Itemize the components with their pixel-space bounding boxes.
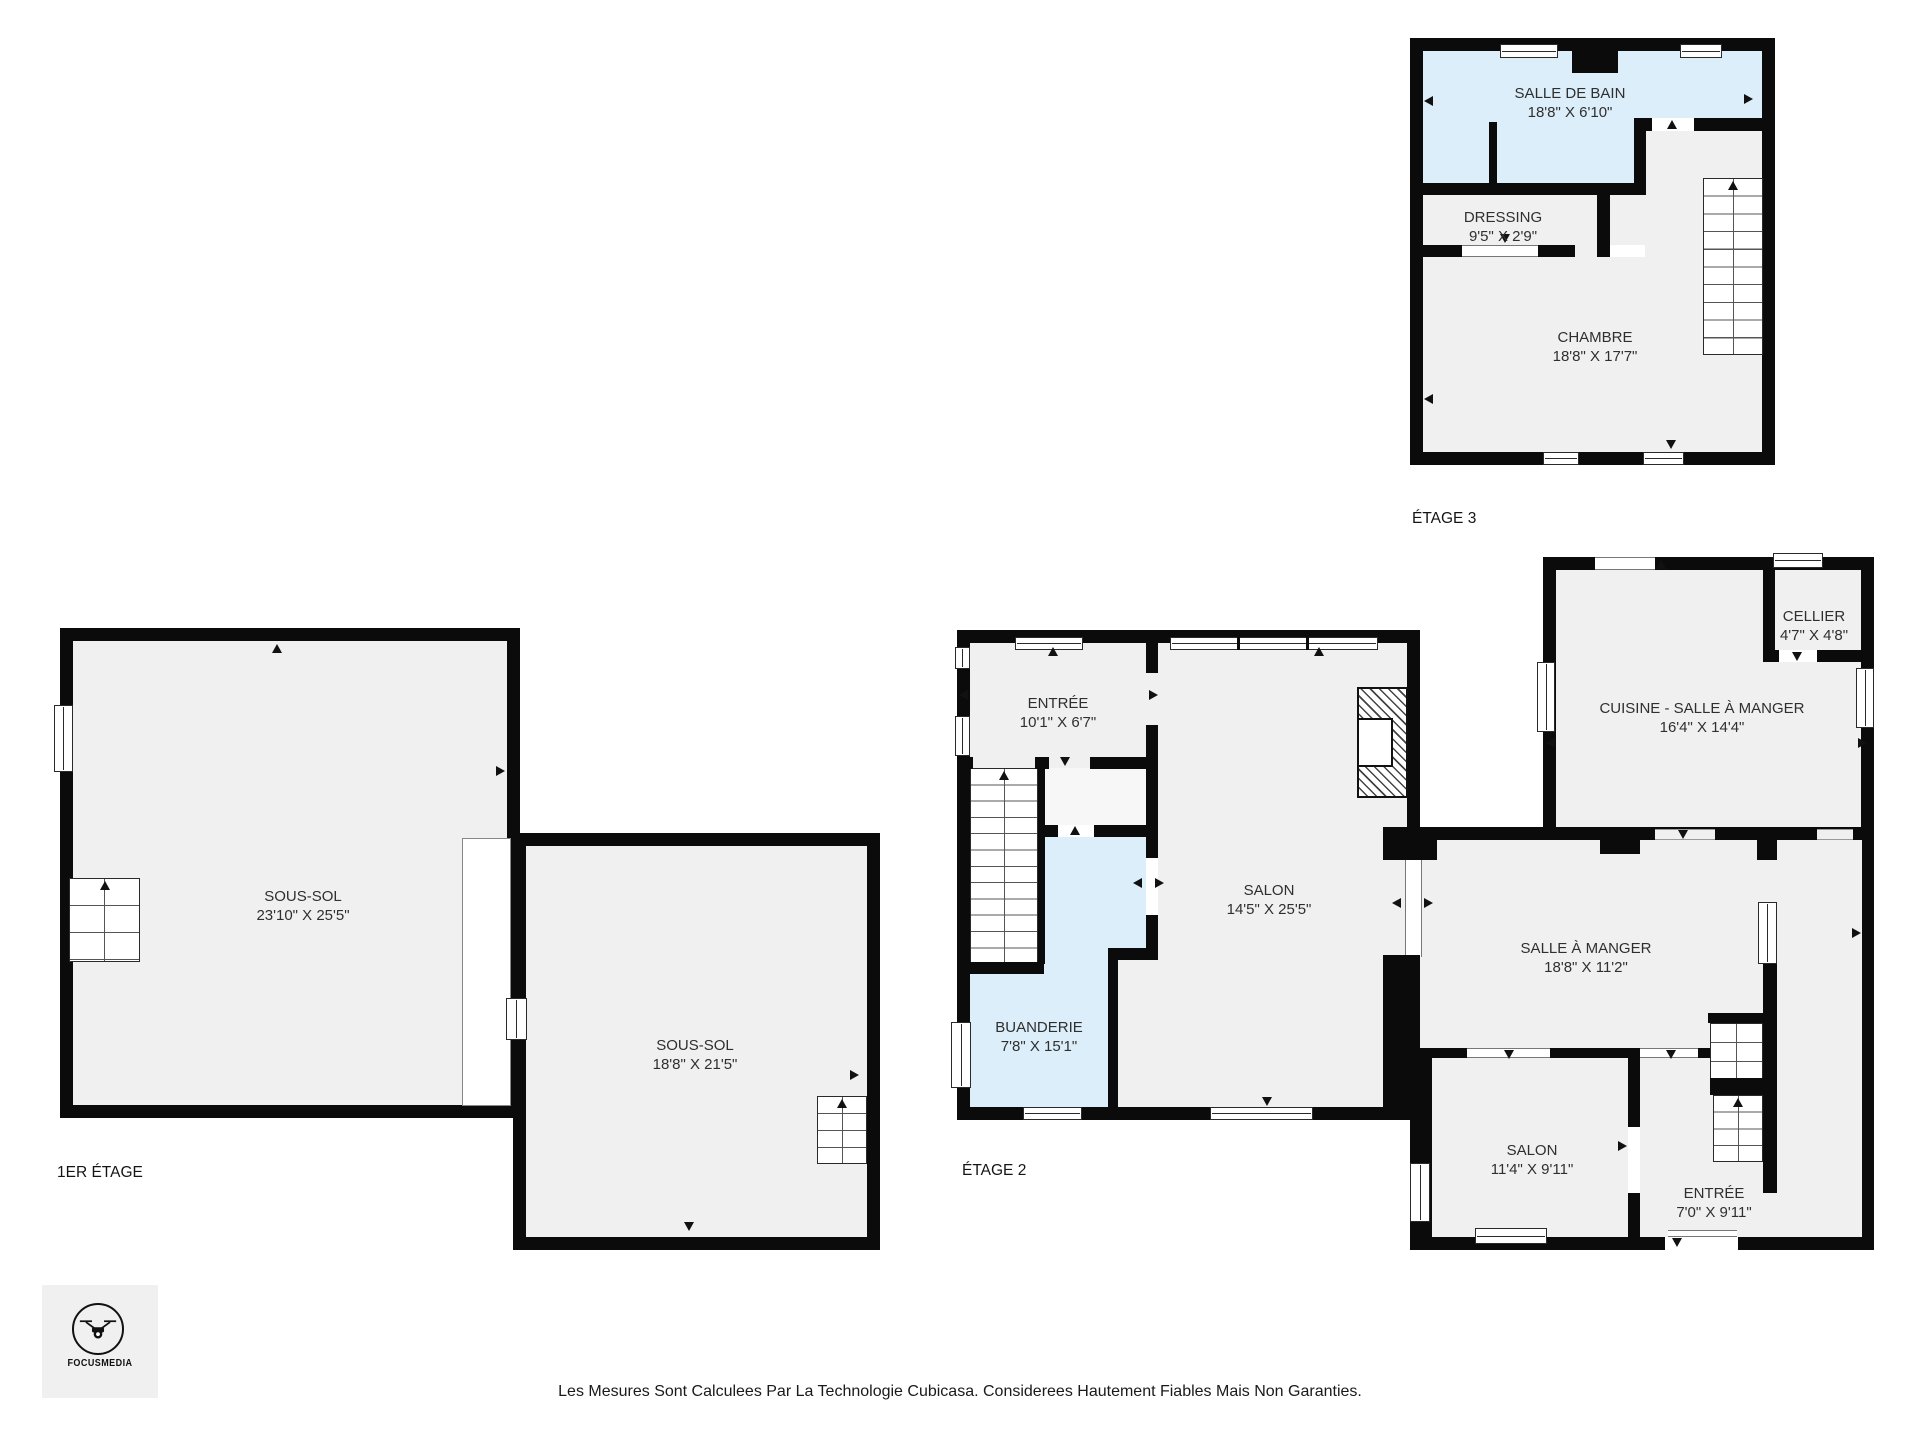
room-label-chambre: CHAMBRE 18'8" X 17'7" (1553, 329, 1638, 366)
door-arrow-icon (1744, 94, 1753, 104)
door-arrow-icon (1667, 120, 1677, 129)
window (955, 647, 970, 669)
room-name: SALLE À MANGER (1521, 940, 1652, 959)
door-opening (1595, 557, 1655, 570)
door-arrow-icon (272, 644, 282, 653)
door-arrow-icon (1314, 647, 1324, 656)
staircase (1713, 1095, 1763, 1162)
window (1210, 1107, 1313, 1120)
staircase (1710, 1023, 1763, 1080)
staircase-divider (1733, 179, 1734, 354)
door-arrow-icon (1070, 826, 1080, 835)
wall (1038, 768, 1045, 964)
wall (1108, 948, 1118, 1107)
room-area-salle-a-manger (1420, 840, 1862, 1237)
stairs-up-arrow-icon (1728, 181, 1738, 190)
wall (1432, 1048, 1467, 1058)
room-name: SALLE DE BAIN (1515, 85, 1626, 104)
wall (1538, 245, 1575, 257)
window (1170, 637, 1378, 650)
room-label-sous-sol-2: SOUS-SOL 18'8" X 21'5" (653, 1037, 738, 1074)
door-arrow-icon (850, 1070, 859, 1080)
door-arrow-icon (1852, 928, 1861, 938)
opening-between-rooms (462, 838, 511, 1106)
door-arrow-icon (1678, 830, 1688, 839)
wall (957, 757, 973, 769)
door-arrow-icon (1618, 1141, 1627, 1151)
wall (1383, 955, 1420, 1120)
floor-label-1er-etage: 1ER ÉTAGE (57, 1164, 143, 1182)
door-opening (1817, 829, 1853, 840)
room-label-salon: SALON 14'5" X 25'5" (1227, 882, 1312, 919)
room-label-cellier: CELLIER 4'7" X 4'8" (1780, 608, 1848, 645)
wall (1572, 38, 1618, 73)
window (506, 998, 527, 1040)
drone-icon (72, 1303, 124, 1355)
room-label-salle-a-manger: SALLE À MANGER 18'8" X 11'2" (1521, 940, 1652, 977)
room-label-entree: ENTRÉE 10'1" X 6'7" (1020, 695, 1096, 732)
window (955, 716, 970, 756)
door-arrow-icon (1504, 1050, 1514, 1059)
room-dims: 9'5" X 2'9" (1464, 228, 1542, 247)
window (1856, 668, 1874, 728)
window (1475, 1228, 1547, 1244)
wall (1763, 570, 1775, 662)
window (1500, 44, 1558, 58)
room-dims: 11'4" X 9'11" (1491, 1161, 1574, 1180)
room-label-dressing: DRESSING 9'5" X 2'9" (1464, 209, 1542, 246)
wall (1628, 1193, 1640, 1237)
room-label-entree-2: ENTRÉE 7'0" X 9'11" (1676, 1185, 1751, 1222)
wall (1550, 1048, 1628, 1058)
wall (1090, 757, 1158, 769)
room-name: CHAMBRE (1553, 329, 1638, 348)
door-arrow-icon (1392, 898, 1401, 908)
stairs-up-arrow-icon (837, 1099, 847, 1108)
wall (1634, 118, 1646, 195)
door-arrow-icon (1155, 878, 1164, 888)
wall (957, 962, 1044, 974)
room-name: CELLIER (1780, 608, 1848, 627)
staircase (817, 1096, 867, 1164)
room-dims: 7'8" X 15'1" (995, 1038, 1083, 1057)
door-arrow-icon (1656, 560, 1666, 569)
door-arrow-icon (1424, 394, 1433, 404)
door-arrow-icon (1149, 690, 1158, 700)
staircase-divider (1004, 769, 1005, 963)
wall (1628, 1048, 1640, 1127)
room-name: ENTRÉE (1676, 1185, 1751, 1204)
door-arrow-icon (1792, 652, 1802, 661)
floor-label-etage-2: ÉTAGE 2 (962, 1162, 1026, 1180)
window (1537, 662, 1555, 732)
room-name: CUISINE - SALLE À MANGER (1599, 700, 1804, 719)
wall (1489, 122, 1497, 183)
stairs-up-arrow-icon (999, 771, 1009, 780)
wall (1146, 769, 1158, 858)
room-label-salon-2: SALON 11'4" X 9'11" (1491, 1142, 1574, 1179)
room-name: SALON (1227, 882, 1312, 901)
window (1543, 452, 1579, 465)
door-arrow-icon (1048, 647, 1058, 656)
room-dims: 23'10" X 25'5" (256, 907, 349, 926)
staircase (1703, 178, 1763, 355)
window (951, 1022, 971, 1088)
floor-label-etage-3: ÉTAGE 3 (1412, 510, 1476, 528)
logo: FOCUSMEDIA (42, 1285, 158, 1398)
room-label-cuisine-salle-a-manger: CUISINE - SALLE À MANGER 16'4" X 14'4" (1599, 700, 1804, 737)
wall (1757, 827, 1777, 860)
room-name: ENTRÉE (1020, 695, 1096, 714)
window-divider (1306, 637, 1309, 650)
door-arrow-icon (684, 1222, 694, 1231)
room-dims: 10'1" X 6'7" (1020, 714, 1096, 733)
disclaimer-text: Les Mesures Sont Calculees Par La Techno… (0, 1383, 1920, 1401)
wet-room-area-buanderie (1044, 837, 1147, 950)
room-dims: 18'8" X 21'5" (653, 1056, 738, 1075)
door-arrow-icon (1262, 1097, 1272, 1106)
wall (1710, 1078, 1763, 1095)
fireplace-insert (1357, 718, 1393, 767)
door-opening (1610, 245, 1645, 257)
door-arrow-icon (1666, 440, 1676, 449)
staircase (970, 768, 1038, 964)
room-name: BUANDERIE (995, 1019, 1083, 1038)
room-dims: 4'7" X 4'8" (1780, 627, 1848, 646)
wall (1035, 757, 1049, 769)
door-arrow-icon (1424, 898, 1433, 908)
window (1758, 902, 1777, 964)
wall (1600, 840, 1640, 854)
door-opening (1628, 1127, 1640, 1193)
wall (1708, 1013, 1765, 1023)
door-arrow-icon (1666, 1050, 1676, 1059)
room-dims: 18'8" X 11'2" (1521, 959, 1652, 978)
staircase-divider (104, 879, 105, 961)
room-dims: 14'5" X 25'5" (1227, 901, 1312, 920)
door-arrow-icon (496, 766, 505, 776)
room-label-sous-sol-1: SOUS-SOL 23'10" X 25'5" (256, 888, 349, 925)
door-arrow-icon (1424, 96, 1433, 106)
wall (1410, 245, 1462, 257)
room-dims: 18'8" X 17'7" (1553, 348, 1638, 367)
logo-brand-text: FOCUSMEDIA (48, 1358, 152, 1369)
window (1023, 1107, 1082, 1120)
room-label-salle-de-bain: SALLE DE BAIN 18'8" X 6'10" (1515, 85, 1626, 122)
door-arrow-icon (1672, 1238, 1682, 1247)
wall (1597, 185, 1610, 257)
window-divider (1237, 637, 1240, 650)
room-name: SOUS-SOL (653, 1037, 738, 1056)
window (1410, 1163, 1430, 1222)
door-opening (1405, 860, 1422, 957)
staircase (69, 878, 140, 962)
stairs-up-arrow-icon (1733, 1098, 1743, 1107)
room-dims: 16'4" X 14'4" (1599, 719, 1804, 738)
wall (1146, 643, 1158, 673)
wall (1763, 960, 1777, 1193)
door-arrow-icon (959, 690, 968, 700)
floor-plan-page: SALLE DE BAIN 18'8" X 6'10" DRESSING 9'5… (0, 0, 1920, 1440)
door-opening (1462, 245, 1538, 257)
staircase-divider (1736, 1024, 1737, 1079)
room-name: DRESSING (1464, 209, 1542, 228)
wet-room-area-salle-de-bain (1423, 122, 1634, 185)
room-dims: 7'0" X 9'11" (1676, 1204, 1751, 1223)
door-sill (1668, 1230, 1737, 1237)
door-arrow-icon (1546, 738, 1555, 748)
door-arrow-icon (1060, 757, 1070, 766)
wall (1383, 827, 1437, 860)
room-area-sous-sol-1 (73, 641, 507, 1105)
window (1680, 44, 1722, 58)
door-arrow-icon (1858, 738, 1867, 748)
closet-area (1044, 768, 1146, 825)
window (1773, 553, 1823, 568)
window (1643, 452, 1684, 465)
room-name: SOUS-SOL (256, 888, 349, 907)
room-dims: 18'8" X 6'10" (1515, 104, 1626, 123)
window (54, 705, 73, 772)
room-label-buanderie: BUANDERIE 7'8" X 15'1" (995, 1019, 1083, 1056)
drone-icon-graphic (79, 1317, 117, 1341)
door-arrow-icon (1133, 878, 1142, 888)
stairs-up-arrow-icon (100, 881, 110, 890)
room-name: SALON (1491, 1142, 1574, 1161)
